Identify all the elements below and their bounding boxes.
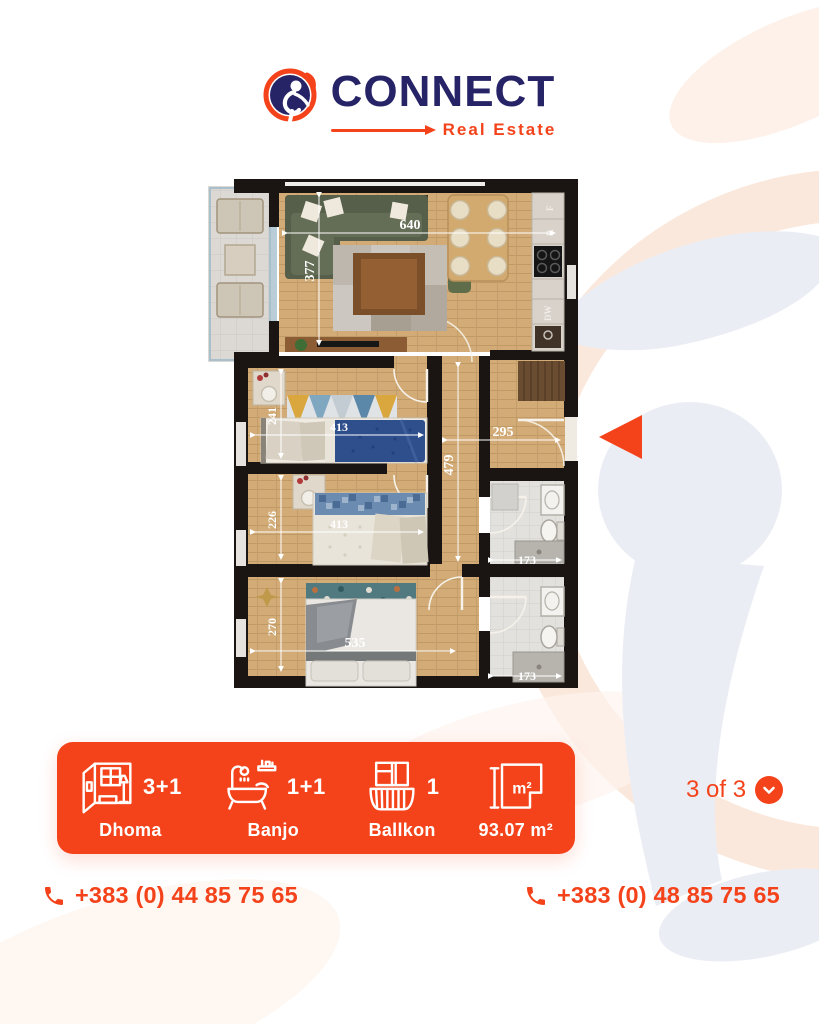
tagline-arrow-line: [331, 129, 427, 132]
dim-living-height: 377: [303, 261, 318, 282]
stat-area: m² 93.07 m²: [479, 756, 553, 841]
toilet: [541, 520, 564, 542]
room-icon: [79, 759, 135, 815]
sink: [535, 326, 561, 348]
dim-living-width: 640: [400, 218, 421, 233]
entrance-marker-icon: [599, 415, 642, 459]
phone-icon: [524, 884, 548, 908]
dim-bed2-height: 226: [265, 511, 279, 529]
dim-hall-height: 479: [442, 455, 457, 476]
dim-bed2-width: 413: [330, 517, 348, 531]
stat-value-balconies: 1: [427, 774, 440, 800]
phone-number: +383 (0) 44 85 75 65: [75, 882, 298, 909]
dim-bed1-height: 241: [265, 407, 279, 425]
dim-bath1-width: 173: [518, 553, 536, 567]
phone-contact-right[interactable]: +383 (0) 48 85 75 65: [524, 882, 780, 909]
stat-label-baths: Banjo: [248, 820, 300, 841]
phone-icon: [42, 884, 66, 908]
chevron-down-icon: [761, 782, 777, 798]
stat-rooms: 3+1 Dhoma: [79, 756, 182, 841]
kitchen: F R DW: [532, 193, 564, 351]
stat-label-balconies: Ballkon: [369, 820, 436, 841]
page-indicator: 3 of 3: [686, 776, 746, 804]
next-page-button[interactable]: [755, 776, 783, 804]
dim-entry-width: 295: [493, 425, 514, 440]
fridge-label: F: [545, 205, 555, 211]
phone-contact-left[interactable]: +383 (0) 44 85 75 65: [42, 882, 298, 909]
stats-bar: 3+1 Dhoma 1+1 Banjo: [57, 742, 575, 854]
dim-bed1-width: 413: [330, 420, 348, 434]
stat-value-baths: 1+1: [287, 774, 326, 800]
brand-name: CONNECT: [331, 70, 557, 114]
balcony-icon: [365, 759, 419, 815]
stat-baths: 1+1 Banjo: [221, 756, 326, 841]
tv: [317, 341, 379, 347]
phone-number: +383 (0) 48 85 75 65: [557, 882, 780, 909]
brand-tagline: Real Estate: [443, 120, 557, 140]
logo: CONNECT Real Estate: [0, 62, 819, 142]
stat-label-rooms: Dhoma: [99, 820, 162, 841]
plant: [295, 339, 307, 351]
dim-bath2-width: 173: [518, 669, 536, 683]
floor-plan: F R DW: [205, 175, 650, 698]
bath-icon: [221, 759, 279, 815]
dim-master-height: 270: [265, 618, 279, 636]
dim-master-width: 535: [345, 636, 366, 651]
pager: 3 of 3: [686, 776, 783, 804]
area-unit: m²: [512, 780, 531, 797]
logo-figure-icon: [263, 62, 321, 142]
entry-opening: [565, 417, 577, 461]
lamp: [262, 387, 277, 402]
stat-label-area: 93.07 m²: [479, 820, 553, 841]
dishwasher-label: DW: [543, 306, 553, 322]
toilet: [541, 626, 564, 648]
entry-closet: [518, 361, 565, 401]
area-icon: m²: [487, 759, 545, 815]
stat-value-rooms: 3+1: [143, 774, 182, 800]
stat-balconies: 1 Ballkon: [365, 756, 440, 841]
